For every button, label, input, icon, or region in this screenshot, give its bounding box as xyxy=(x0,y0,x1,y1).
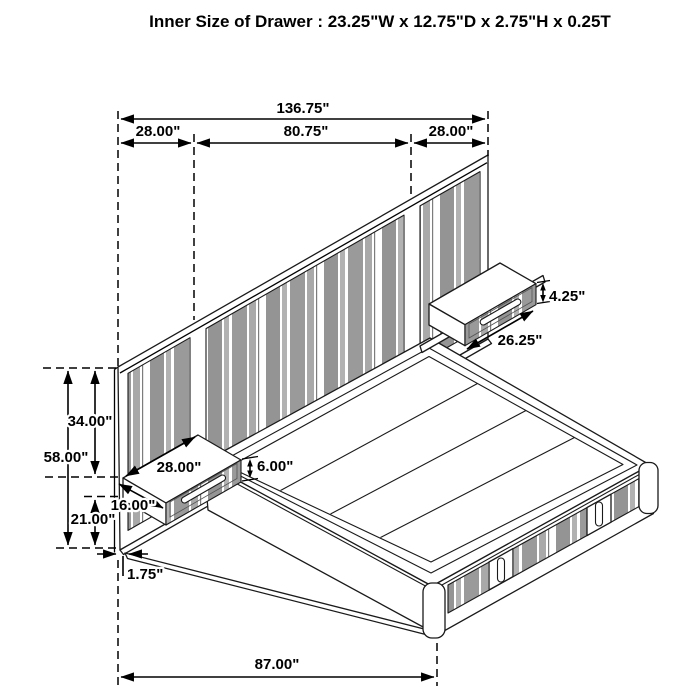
dim-left-section-label: 28.00" xyxy=(136,123,181,140)
dim-left-nightstand-depth-label: 16.00" xyxy=(111,497,156,514)
platform-left-corner-post xyxy=(423,583,445,638)
dim-center-section: 80.75" xyxy=(197,123,408,143)
diagram-canvas: 136.75" 28.00" 80.75" 28.00" 58.00" 34.0… xyxy=(0,0,700,700)
dim-right-nightstand-width-label: 26.25" xyxy=(498,332,543,349)
dim-bed-length: 87.00" xyxy=(121,656,434,677)
dim-right-nightstand-height-label: 4.25" xyxy=(549,288,585,305)
dim-overall-width: 136.75" xyxy=(121,100,485,119)
dim-panel-thickness-label: 1.75" xyxy=(127,566,163,583)
dim-upper-height-label: 34.00" xyxy=(68,413,113,430)
dim-overall-width-label: 136.75" xyxy=(277,100,330,117)
dim-center-section-label: 80.75" xyxy=(284,123,329,140)
dim-headboard-height-label: 58.00" xyxy=(44,449,89,466)
dim-right-section-label: 28.00" xyxy=(429,123,474,140)
dim-lower-height-label: 21.00" xyxy=(71,511,116,528)
dim-bed-length-label: 87.00" xyxy=(255,656,300,673)
dim-left-nightstand-height-label: 6.00" xyxy=(257,458,293,475)
dim-right-section: 28.00" xyxy=(414,123,485,143)
dim-left-section: 28.00" xyxy=(121,123,191,143)
footboard-drawer-handle-2 xyxy=(596,502,603,526)
bed-dimension-diagram: 136.75" 28.00" 80.75" 28.00" 58.00" 34.0… xyxy=(0,0,700,700)
dim-left-nightstand-width-label: 28.00" xyxy=(157,459,202,476)
footboard-drawer-handle-1 xyxy=(498,558,505,582)
dim-right-nightstand-height: 4.25" xyxy=(537,281,585,306)
page-title: Inner Size of Drawer : 23.25"W x 12.75"D… xyxy=(149,12,611,31)
platform-right-corner-post xyxy=(639,463,658,514)
dim-lower-height: 21.00" xyxy=(71,500,116,545)
